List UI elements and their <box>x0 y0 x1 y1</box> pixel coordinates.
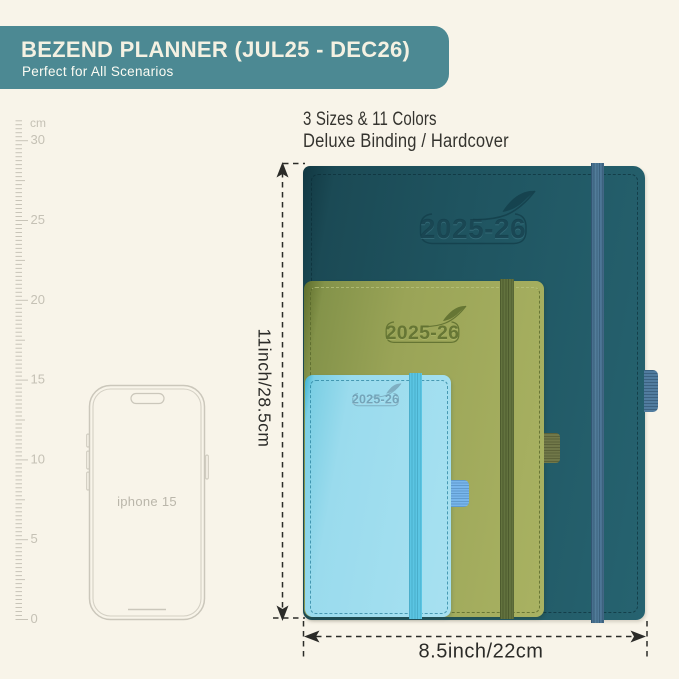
svg-text:15: 15 <box>31 372 45 387</box>
svg-text:5: 5 <box>31 531 38 546</box>
svg-text:cm: cm <box>30 116 46 130</box>
svg-text:2025-26: 2025-26 <box>420 213 526 244</box>
svg-text:25: 25 <box>31 212 45 227</box>
svg-text:2025-26: 2025-26 <box>386 322 460 344</box>
svg-text:2025-26: 2025-26 <box>352 393 399 407</box>
svg-text:0: 0 <box>31 611 38 626</box>
svg-text:10: 10 <box>31 451 45 466</box>
svg-text:20: 20 <box>31 292 45 307</box>
svg-text:iphone 15: iphone 15 <box>117 494 177 509</box>
svg-text:30: 30 <box>31 132 45 147</box>
